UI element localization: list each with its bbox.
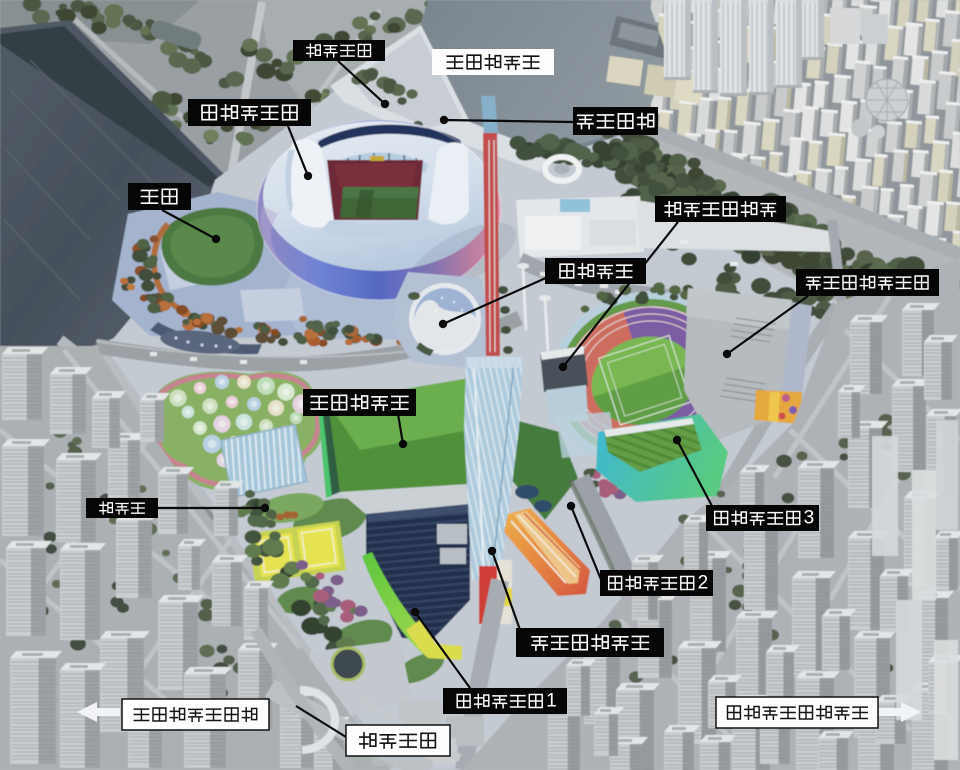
svg-text:1: 1: [546, 691, 557, 712]
svg-text:3: 3: [804, 508, 815, 529]
svg-text:2: 2: [698, 573, 709, 594]
